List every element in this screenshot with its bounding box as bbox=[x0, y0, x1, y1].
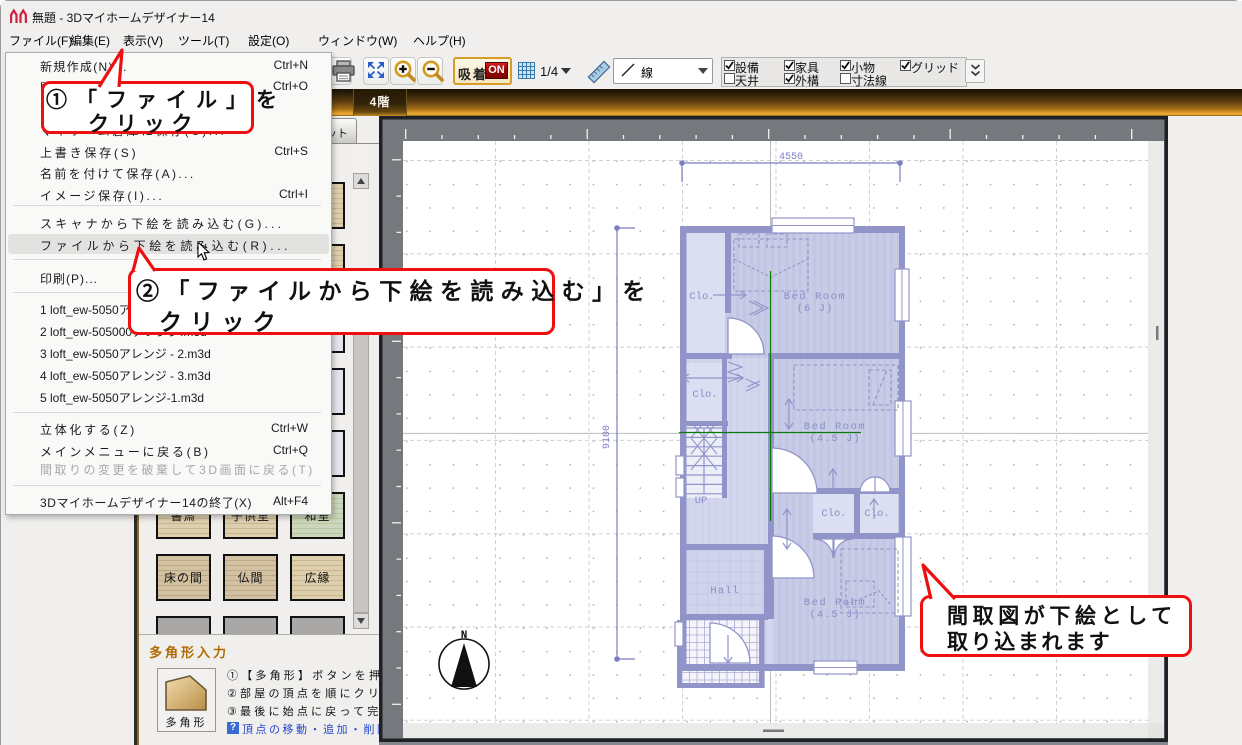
svg-text:Clo.: Clo. bbox=[692, 389, 717, 401]
svg-text:Clo.: Clo. bbox=[864, 508, 889, 520]
svg-text:UP: UP bbox=[695, 495, 708, 507]
svg-text:Bed Room: Bed Room bbox=[784, 291, 846, 303]
svg-text:9100: 9100 bbox=[602, 425, 613, 449]
svg-text:Clo.: Clo. bbox=[689, 291, 714, 303]
svg-text:Bed Room: Bed Room bbox=[804, 421, 866, 433]
svg-text:(6 J): (6 J) bbox=[797, 303, 834, 315]
svg-text:Bed Robm: Bed Robm bbox=[804, 597, 866, 609]
svg-text:Hall: Hall bbox=[710, 585, 739, 597]
svg-text:(4.5 J): (4.5 J) bbox=[809, 609, 860, 621]
svg-text:(4.5 J): (4.5 J) bbox=[809, 433, 860, 445]
svg-text:4550: 4550 bbox=[779, 152, 803, 163]
svg-text:N: N bbox=[461, 630, 468, 642]
svg-text:Clo.: Clo. bbox=[821, 508, 846, 520]
